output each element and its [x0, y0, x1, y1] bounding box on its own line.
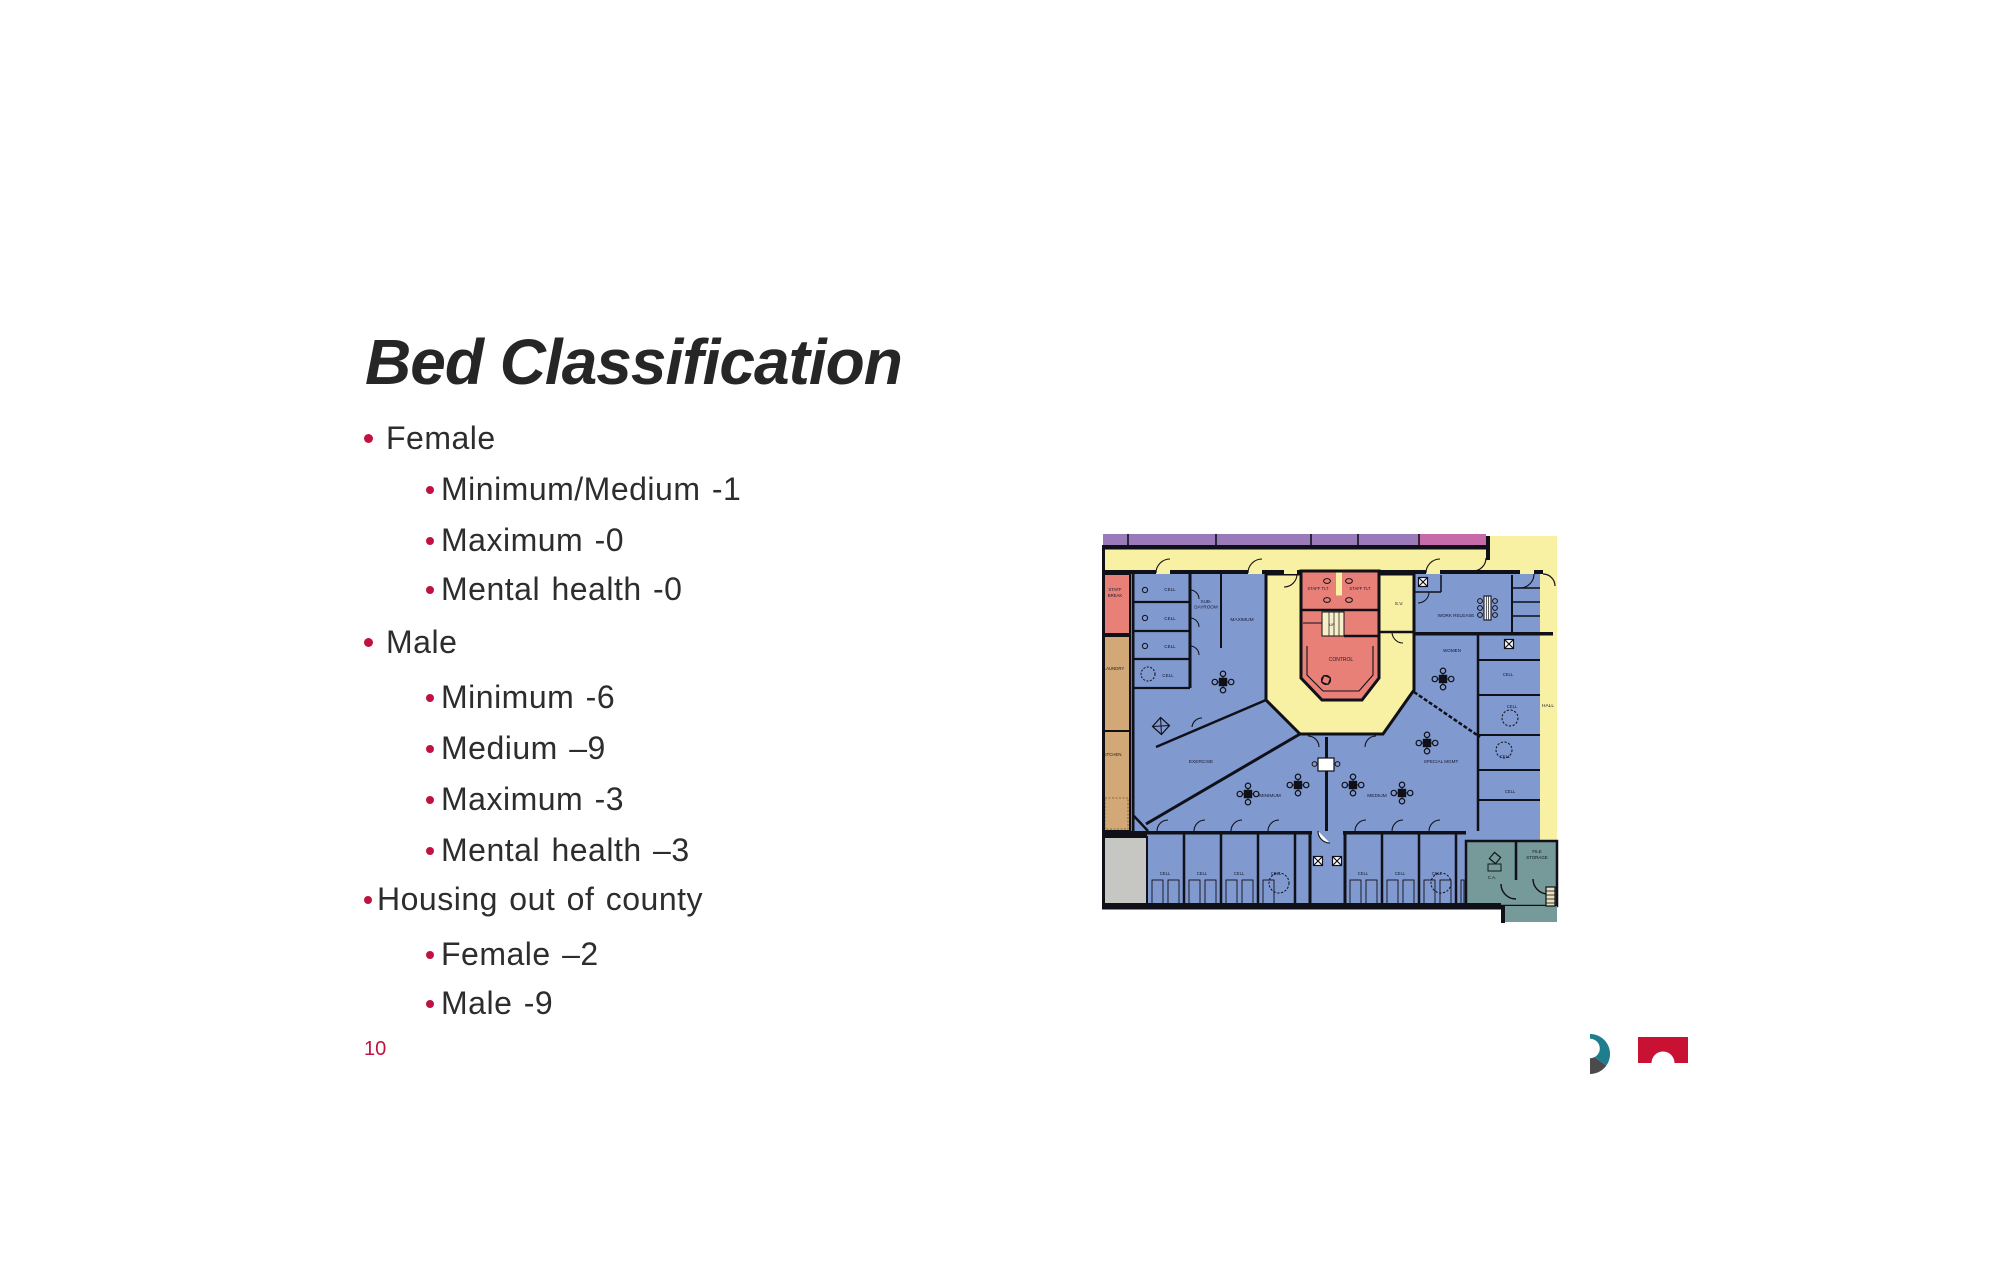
svg-text:CELL: CELL: [1162, 673, 1174, 678]
svg-text:LAUNDRY: LAUNDRY: [1104, 666, 1125, 671]
svg-text:MEDIUM: MEDIUM: [1367, 793, 1386, 799]
svg-text:CELL: CELL: [1505, 789, 1516, 794]
svg-text:EXERCISE: EXERCISE: [1189, 759, 1213, 765]
svg-text:CELL: CELL: [1500, 754, 1511, 759]
svg-text:S.V.: S.V.: [1395, 601, 1404, 607]
svg-text:CELL: CELL: [1197, 871, 1208, 876]
svg-text:CELL: CELL: [1358, 871, 1369, 876]
svg-text:CELL: CELL: [1507, 704, 1518, 709]
svg-text:KITCHEN: KITCHEN: [1103, 752, 1122, 757]
svg-text:CELL: CELL: [1503, 672, 1514, 677]
svg-text:CELL: CELL: [1160, 871, 1171, 876]
svg-text:CELL: CELL: [1234, 871, 1245, 876]
svg-text:SPECIAL MGMT: SPECIAL MGMT: [1424, 759, 1459, 764]
svg-text:STAFF: STAFF: [1108, 587, 1122, 592]
svg-text:CELL: CELL: [1164, 616, 1176, 621]
svg-text:C.A.: C.A.: [1488, 875, 1497, 880]
svg-text:STAFF TLT: STAFF TLT: [1349, 586, 1371, 591]
svg-text:FILE: FILE: [1532, 849, 1541, 854]
svg-text:DAYROOM: DAYROOM: [1194, 605, 1218, 610]
svg-text:STORAGE: STORAGE: [1526, 855, 1547, 860]
svg-text:BREAK: BREAK: [1108, 593, 1123, 598]
svg-text:MAXIMUM: MAXIMUM: [1230, 617, 1253, 623]
svg-text:HALL: HALL: [1542, 703, 1554, 709]
svg-text:STAFF TLT: STAFF TLT: [1307, 586, 1329, 591]
svg-text:CELL: CELL: [1395, 871, 1406, 876]
svg-text:CELL: CELL: [1164, 644, 1176, 649]
svg-text:WOMEN: WOMEN: [1443, 648, 1461, 653]
svg-text:UP: UP: [1329, 623, 1335, 627]
svg-text:CONTROL: CONTROL: [1329, 657, 1354, 663]
svg-text:CELL: CELL: [1164, 587, 1176, 592]
svg-text:SUB-: SUB-: [1201, 599, 1212, 604]
svg-text:WORK RELEASE: WORK RELEASE: [1438, 613, 1475, 618]
svg-text:MINIMUM: MINIMUM: [1259, 793, 1281, 799]
